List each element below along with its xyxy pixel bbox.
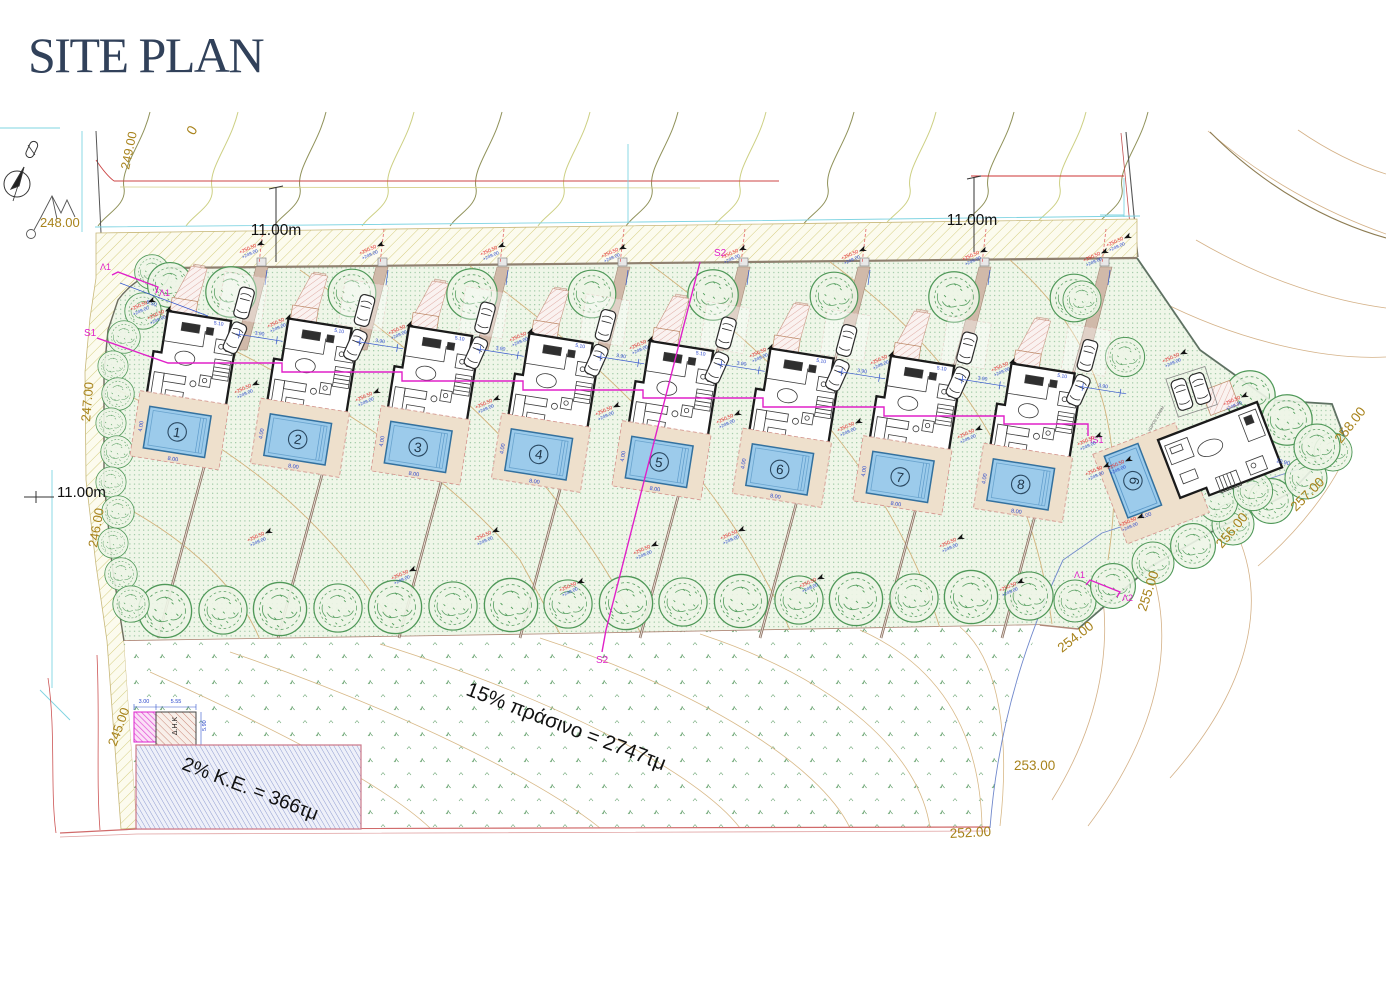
svg-text:3.00: 3.00 xyxy=(139,699,150,705)
svg-text:Λ1: Λ1 xyxy=(100,262,111,272)
svg-text:249.00: 249.00 xyxy=(118,130,140,170)
svg-text:S1: S1 xyxy=(84,328,97,339)
svg-text:0: 0 xyxy=(183,123,201,138)
svg-text:253.00: 253.00 xyxy=(1014,758,1055,773)
svg-text:Λ1: Λ1 xyxy=(1074,570,1085,580)
svg-text:S2: S2 xyxy=(596,655,609,666)
svg-text:5.55: 5.55 xyxy=(171,699,182,705)
svg-text:5.90: 5.90 xyxy=(202,720,208,731)
svg-text:252.00: 252.00 xyxy=(949,824,991,841)
svg-text:11.00m: 11.00m xyxy=(947,212,998,229)
svg-text:Λ1: Λ1 xyxy=(159,288,170,298)
svg-text:11.00m: 11.00m xyxy=(251,222,302,239)
svg-text:11.00m: 11.00m xyxy=(57,484,106,501)
svg-text:Λ2: Λ2 xyxy=(1122,593,1133,603)
svg-text:248.00: 248.00 xyxy=(40,215,80,230)
svg-text:Δ.Η.Κ: Δ.Η.Κ xyxy=(172,717,179,736)
